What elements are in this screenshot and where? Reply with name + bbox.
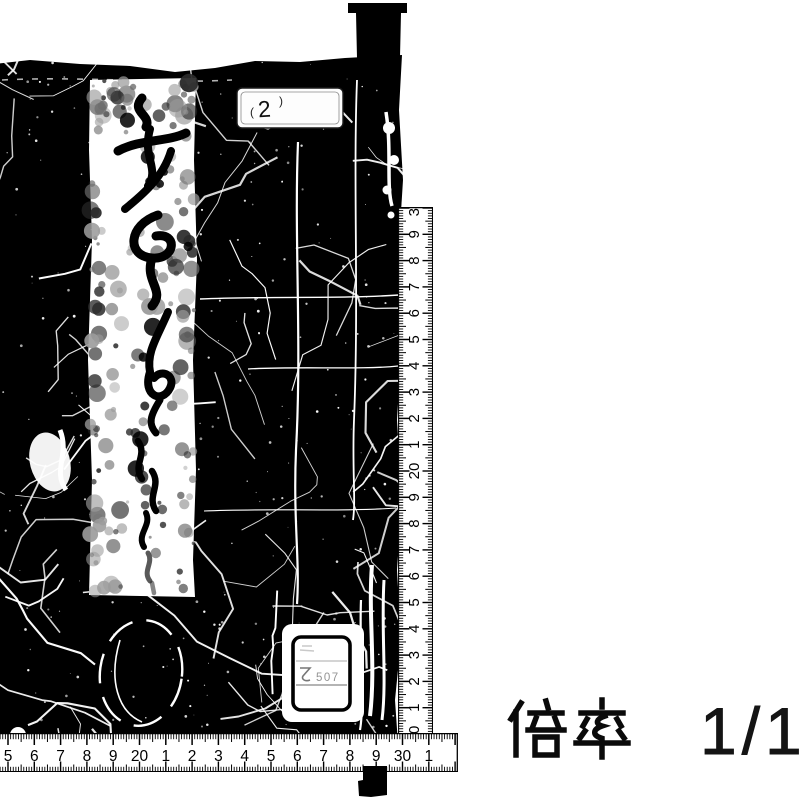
corner-label: ( 2 ) (237, 88, 343, 128)
title-strip (82, 74, 200, 598)
svg-text:20: 20 (131, 748, 149, 765)
svg-text:8: 8 (83, 748, 92, 765)
top-clamp (348, 3, 407, 58)
svg-text:9: 9 (109, 748, 118, 765)
svg-text:6: 6 (406, 309, 423, 317)
svg-text:9: 9 (372, 748, 381, 765)
svg-text:7: 7 (56, 748, 65, 765)
svg-text:7: 7 (319, 748, 328, 765)
svg-text:7: 7 (406, 283, 423, 291)
svg-text:3: 3 (214, 748, 223, 765)
ruler-vertical: 309876543212098765432110 (398, 200, 433, 748)
scale-caption: 1/1 (511, 694, 800, 768)
svg-text:3: 3 (406, 651, 423, 659)
scanned-book-photo: ( 2 ) 507 309876543212098765432110 56789… (0, 0, 800, 800)
svg-text:30: 30 (394, 748, 412, 765)
svg-text:5: 5 (267, 748, 276, 765)
svg-text:2: 2 (406, 414, 423, 422)
catalog-label: 507 (282, 624, 364, 722)
svg-text:1: 1 (406, 704, 423, 712)
svg-text:8: 8 (406, 519, 423, 527)
svg-text:7: 7 (406, 546, 423, 554)
svg-text:5: 5 (4, 748, 13, 765)
svg-text:1: 1 (161, 748, 170, 765)
scan-scene: ( 2 ) 507 309876543212098765432110 56789… (0, 0, 800, 800)
book-cover (0, 22, 521, 800)
svg-text:1: 1 (424, 748, 433, 765)
svg-text:6: 6 (406, 572, 423, 580)
corner-label-digit: 2 (257, 96, 272, 123)
svg-text:8: 8 (346, 748, 355, 765)
svg-text:9: 9 (406, 230, 423, 238)
svg-text:9: 9 (406, 493, 423, 501)
svg-text:5: 5 (406, 598, 423, 606)
svg-text:1: 1 (406, 441, 423, 449)
corner-label-close: ) (279, 94, 283, 108)
svg-text:2: 2 (406, 677, 423, 685)
svg-text:3: 3 (406, 388, 423, 396)
svg-text:2: 2 (188, 748, 197, 765)
scale-ratio-text: 1/1 (700, 694, 800, 768)
svg-text:20: 20 (406, 463, 423, 480)
svg-text:6: 6 (30, 748, 39, 765)
svg-text:4: 4 (406, 362, 423, 370)
svg-text:8: 8 (406, 256, 423, 264)
svg-text:4: 4 (240, 748, 249, 765)
svg-text:5: 5 (406, 335, 423, 343)
scale-label-kanji (511, 700, 628, 757)
catalog-number: 507 (316, 672, 340, 684)
corner-label-open: ( (250, 105, 254, 119)
svg-text:6: 6 (293, 748, 302, 765)
svg-text:30: 30 (406, 200, 423, 217)
svg-text:4: 4 (406, 625, 423, 633)
ruler-horizontal: 5678920123456789301 (0, 733, 458, 772)
